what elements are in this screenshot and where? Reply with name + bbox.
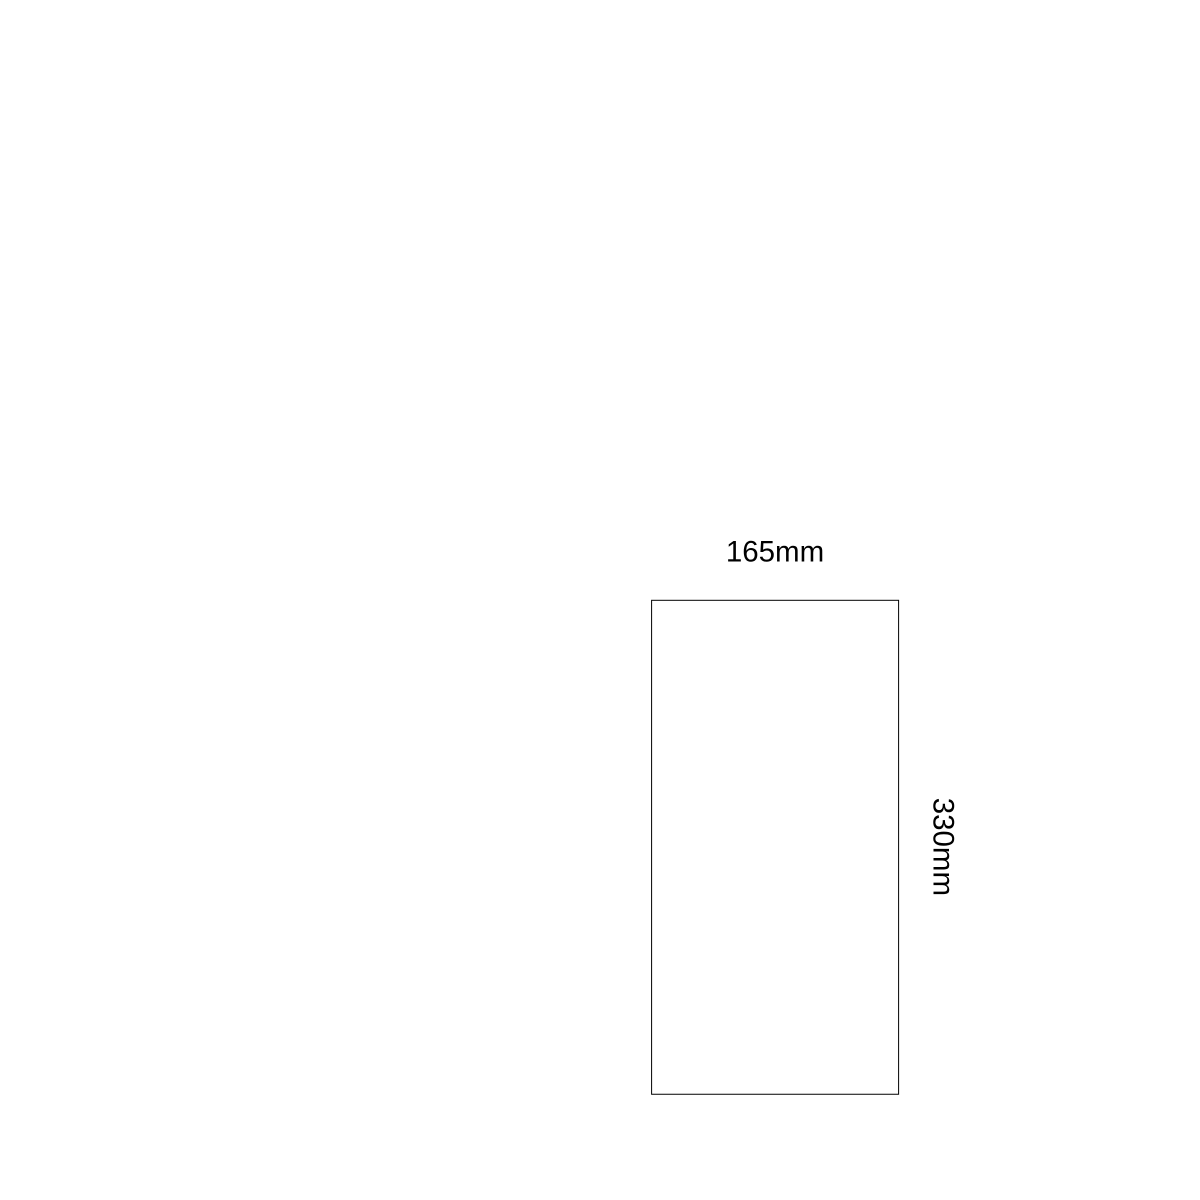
svg-text:165mm: 165mm [726, 536, 824, 569]
svg-text:330mm: 330mm [927, 798, 960, 896]
